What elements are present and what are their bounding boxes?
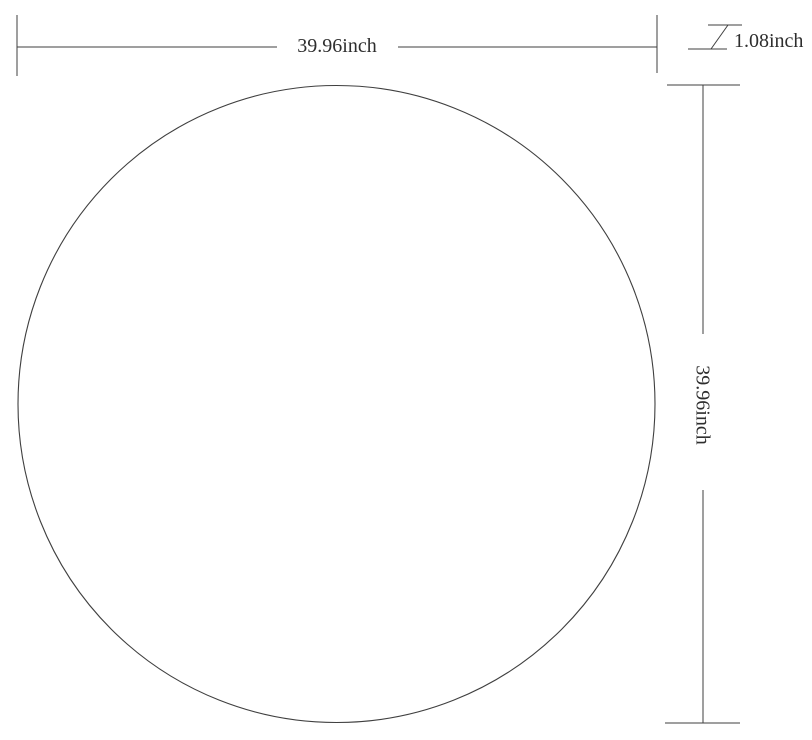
height-dimension-label: 39.96inch (691, 365, 713, 444)
thickness-symbol-diagonal-line (711, 25, 728, 49)
mirror-circle-outline (18, 86, 655, 723)
thickness-dimension: 1.08inch (688, 25, 803, 52)
dimension-diagram: 39.96inch 1.08inch 39.96inch (0, 0, 812, 740)
dimension-diagram-page: 39.96inch 1.08inch 39.96inch (0, 0, 812, 740)
width-dimension-label: 39.96inch (297, 35, 376, 57)
width-dimension: 39.96inch (17, 15, 657, 76)
height-dimension: 39.96inch (665, 85, 740, 723)
thickness-dimension-label: 1.08inch (734, 30, 803, 52)
